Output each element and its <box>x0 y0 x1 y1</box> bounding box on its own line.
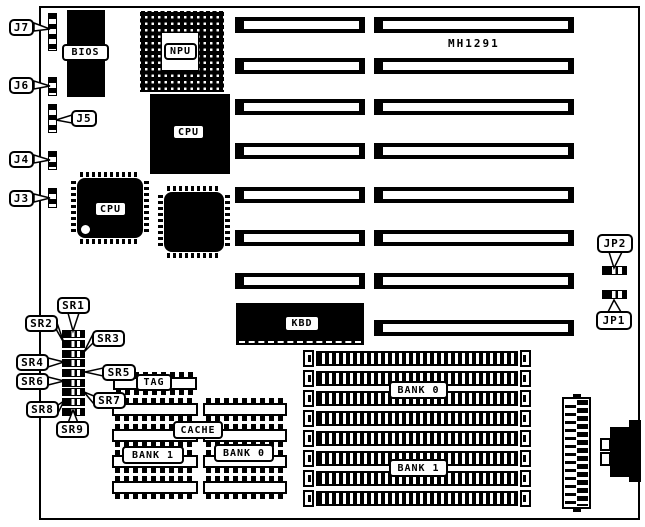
callout-sr3: SR3 <box>92 330 125 347</box>
cache-chip <box>112 481 198 494</box>
port-pin-connector <box>600 438 611 451</box>
qfp-pins <box>167 253 221 258</box>
isa-slot <box>235 187 365 203</box>
isa-slot <box>374 99 574 115</box>
qfp-pins <box>144 181 149 235</box>
jumper-j6 <box>48 77 57 96</box>
simm-clip <box>303 430 314 447</box>
kbd-label: KBD <box>284 315 320 332</box>
callout-sr2: SR2 <box>25 315 58 332</box>
simm-clip <box>303 490 314 507</box>
simm-body <box>316 431 518 446</box>
simm-clip <box>303 450 314 467</box>
simm-clip <box>303 410 314 427</box>
callout-sr6: SR6 <box>16 373 49 390</box>
callout-j7: J7 <box>9 19 34 36</box>
isa-slot <box>235 99 365 115</box>
isa-slot <box>374 273 574 289</box>
simm-body <box>316 351 518 366</box>
simm-body <box>316 491 518 506</box>
callout-jp2: JP2 <box>597 234 633 253</box>
simm-socket <box>303 490 531 507</box>
sr-jumper-row <box>62 408 85 416</box>
simm-bank0-label: BANK 0 <box>389 381 448 399</box>
port-pin-connector <box>600 452 611 466</box>
callout-sr5: SR5 <box>102 364 136 381</box>
simm-clip <box>520 490 531 507</box>
sr-jumper-row <box>62 388 85 396</box>
callout-sr9: SR9 <box>56 421 89 438</box>
simm-clip <box>303 350 314 367</box>
isa-slot <box>374 143 574 159</box>
callout-sr1: SR1 <box>57 297 90 314</box>
cache-label: CACHE <box>173 421 223 439</box>
simm-bank1-label: BANK 1 <box>389 459 448 477</box>
sr-jumper-row <box>62 340 85 348</box>
jumper-j3 <box>48 188 57 208</box>
qfp-pins <box>158 195 163 249</box>
callout-j3: J3 <box>9 190 34 207</box>
callout-j5: J5 <box>71 110 97 127</box>
cpu-label: CPU <box>172 124 205 140</box>
qfp-pins <box>80 172 140 177</box>
sr-jumper-row <box>62 359 85 367</box>
simm-clip <box>520 430 531 447</box>
isa-slot <box>374 17 574 33</box>
simm-socket <box>303 430 531 447</box>
simm-clip <box>520 410 531 427</box>
simm-clip <box>520 450 531 467</box>
isa-slot <box>235 230 365 246</box>
cache-chip <box>203 403 287 416</box>
power-pins <box>565 400 576 506</box>
sr-jumper-row <box>62 369 85 377</box>
keyboard-port-connector <box>610 427 631 477</box>
isa-slot <box>374 58 574 74</box>
callout-jp1: JP1 <box>596 311 632 330</box>
sr-jumper-row <box>62 398 85 406</box>
simm-clip <box>303 370 314 387</box>
simm-clip <box>520 370 531 387</box>
chipset-qfp-chip <box>158 186 230 258</box>
isa-slot <box>374 230 574 246</box>
cache-bank1-label: BANK 1 <box>122 446 184 464</box>
simm-body <box>316 411 518 426</box>
npu-label: NPU <box>164 43 197 60</box>
qfp-pins <box>80 239 140 244</box>
callout-j4: J4 <box>9 151 34 168</box>
qfp-pins <box>167 186 221 191</box>
bios-label: BIOS <box>62 44 109 61</box>
qfp-pins <box>225 195 230 249</box>
isa-slot <box>374 187 574 203</box>
jumper-j7 <box>48 13 57 51</box>
sr-jumper-row <box>62 350 85 358</box>
simm-clip <box>303 390 314 407</box>
jp2-jumper <box>602 266 627 275</box>
isa-slot <box>235 17 365 33</box>
jumper-j4 <box>48 151 57 170</box>
simm-clip <box>520 390 531 407</box>
isa-slot <box>374 320 574 336</box>
callout-j6: J6 <box>9 77 34 94</box>
pin1-dot <box>81 225 90 234</box>
callout-sr7: SR7 <box>93 392 126 409</box>
callout-sr8: SR8 <box>26 401 59 418</box>
simm-clip <box>520 350 531 367</box>
isa-slot <box>235 273 365 289</box>
simm-socket <box>303 350 531 367</box>
qfp-body <box>164 192 224 252</box>
qfp-pins <box>71 181 76 235</box>
cpu-qfp-label: CPU <box>94 201 127 217</box>
jp1-jumper <box>602 290 627 299</box>
callout-sr4: SR4 <box>16 354 49 371</box>
simm-socket <box>303 410 531 427</box>
simm-clip <box>520 470 531 487</box>
cache-bank0-label: BANK 0 <box>214 444 274 462</box>
motherboard-diagram: MH1291 BIOS NPU CPU CPU <box>0 0 645 527</box>
power-pins <box>577 400 588 506</box>
cache-chip <box>203 481 287 494</box>
jumper-j5 <box>48 104 57 133</box>
sr-jumper-row <box>62 330 85 338</box>
tag-label: TAG <box>136 374 172 391</box>
sr-jumper-row <box>62 379 85 387</box>
model-label: MH1291 <box>448 37 500 50</box>
simm-clip <box>303 470 314 487</box>
power-connector <box>562 397 591 509</box>
isa-slot <box>235 58 365 74</box>
isa-slot <box>235 143 365 159</box>
